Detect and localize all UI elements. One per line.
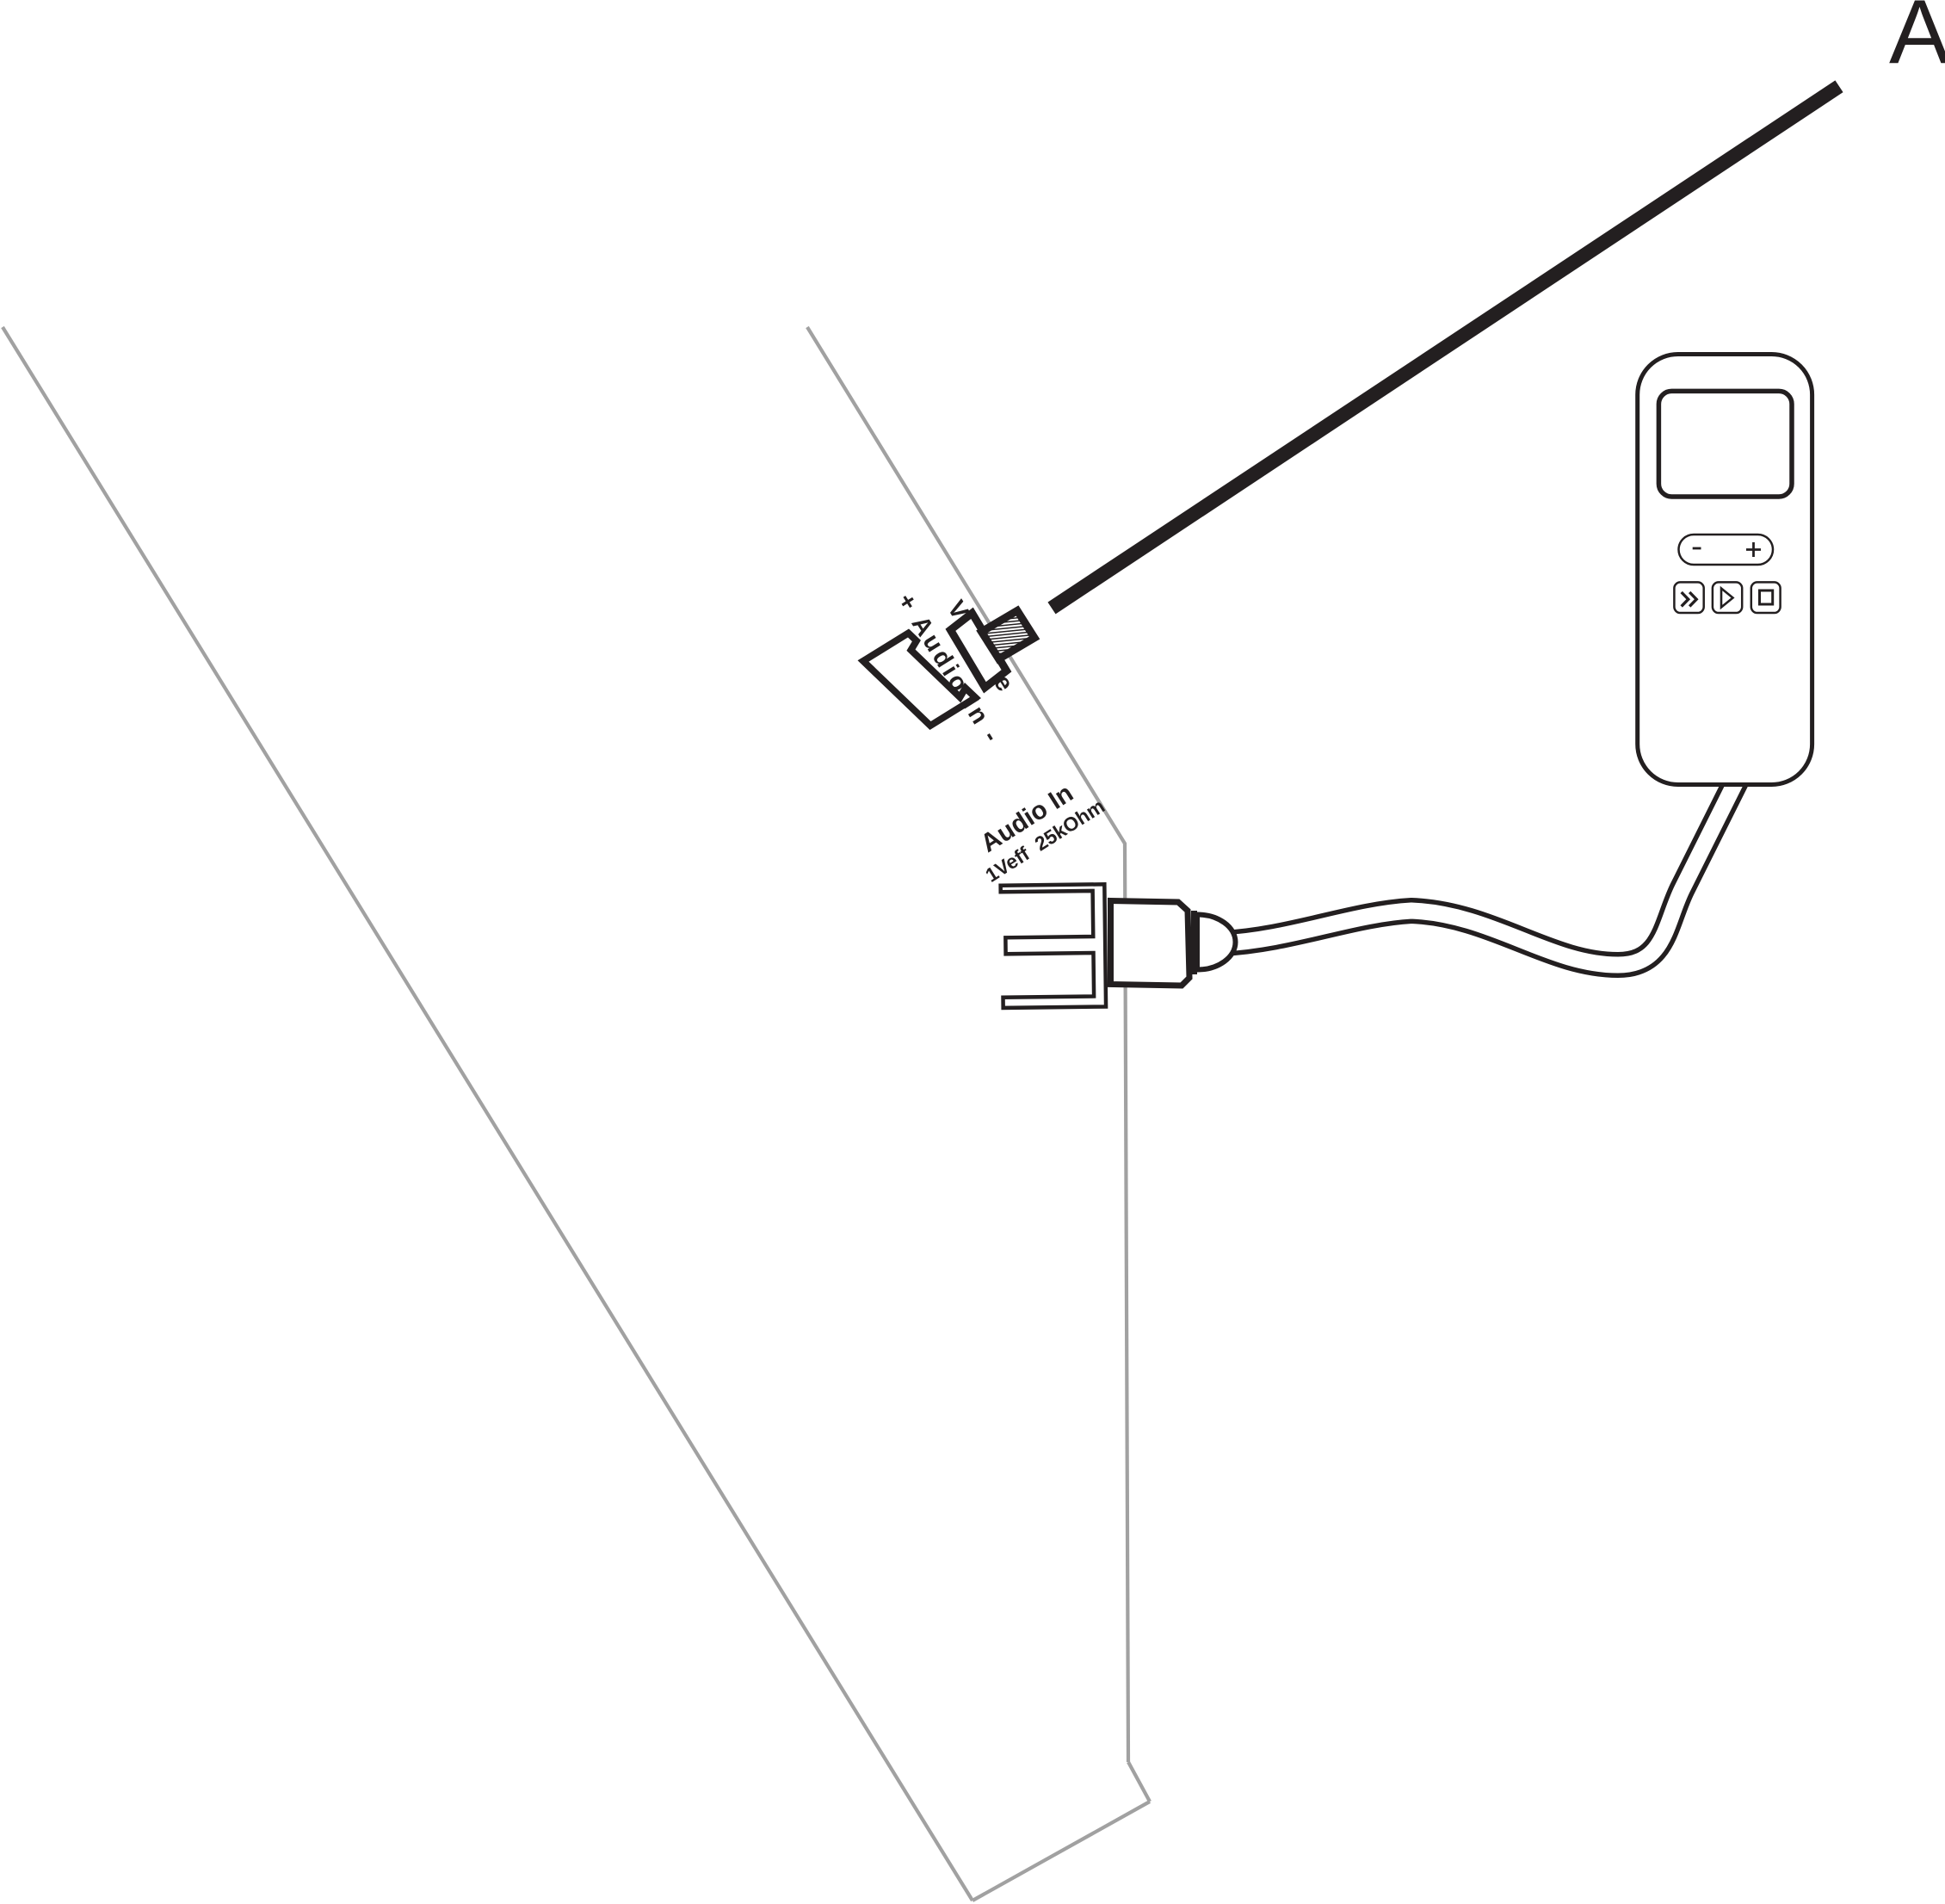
- svg-text:A: A: [1889, 0, 1945, 83]
